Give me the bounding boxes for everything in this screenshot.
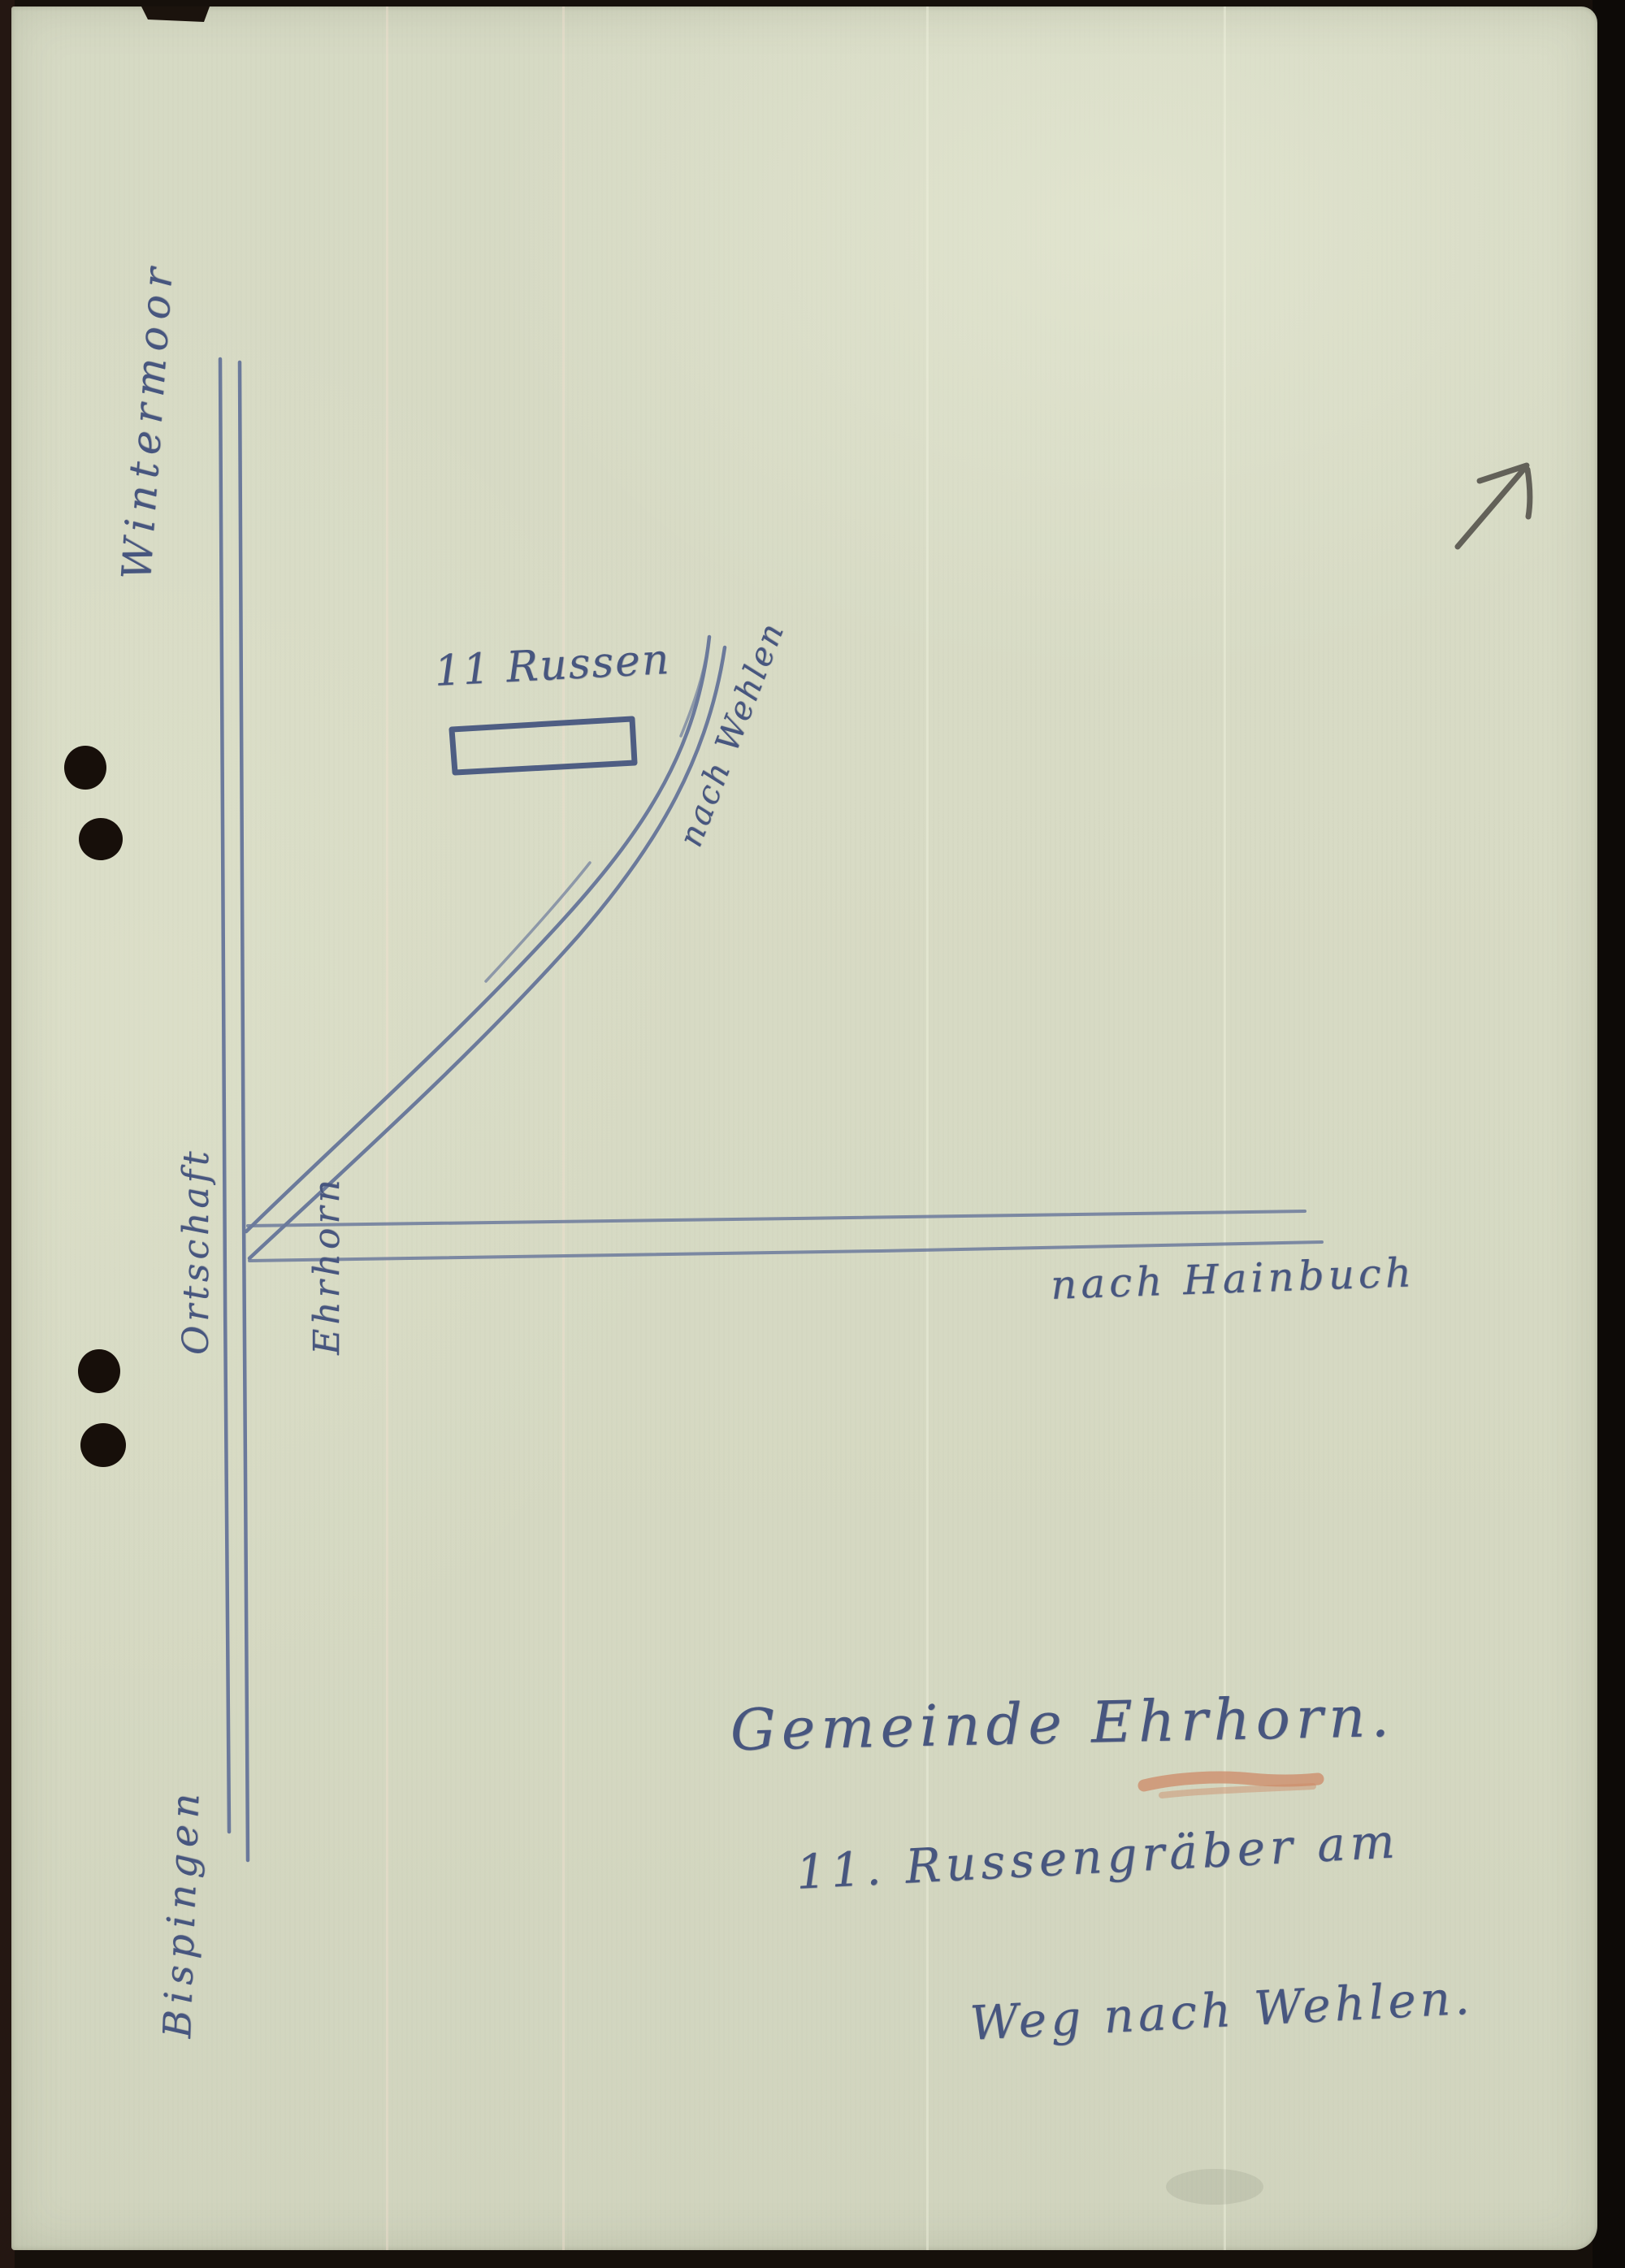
road-hainbuch-top-line <box>248 1211 1305 1226</box>
road-network <box>220 359 1322 1860</box>
pencil-smudge <box>1166 2169 1263 2205</box>
road-wehlen-overlap-stroke <box>486 863 590 981</box>
road-wintermoor-bispingen-right-line <box>240 362 248 1860</box>
village-label-line1: Ortschaft <box>175 1147 219 1355</box>
road-label-bispingen: Bispingen <box>154 1786 210 2039</box>
punch-holes <box>64 746 126 1467</box>
paper-edge-notch <box>141 6 210 22</box>
grave-site-rectangle <box>452 719 635 773</box>
red-underline <box>1144 1777 1318 1795</box>
pencil-arrow-barb-down <box>1527 470 1530 517</box>
punch-hole <box>79 818 123 860</box>
pencil-arrow <box>1458 465 1530 547</box>
road-wintermoor-bispingen-left-line <box>220 359 229 1832</box>
sketch-map-drawing <box>0 0 1625 2268</box>
punch-hole <box>80 1423 126 1467</box>
village-label-line2: Ehrhorn <box>305 1147 349 1355</box>
road-wehlen-overlap-stroke <box>681 648 708 736</box>
village-label-ortschaft-ehrhorn: Ortschaft Ehrhorn <box>88 1147 393 1355</box>
punch-hole <box>78 1349 120 1393</box>
pencil-arrow-shaft <box>1458 469 1524 547</box>
caption-line-gemeinde: Gemeinde Ehrhorn. <box>730 1682 1395 1765</box>
punch-hole <box>64 746 106 790</box>
red-underline-stroke <box>1162 1786 1313 1795</box>
